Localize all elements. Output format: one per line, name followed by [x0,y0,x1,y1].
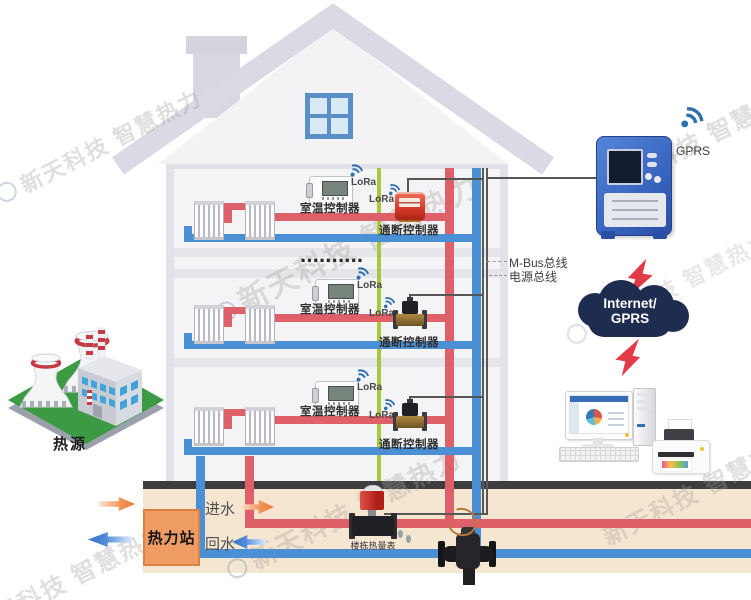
shutoff-valve-device [396,314,424,326]
chimney-cap [186,36,247,54]
mbus-line [482,168,484,515]
supply-flow-label: 进水 [205,498,235,519]
supply-flow-arrow [99,497,135,511]
concentrator-foot [601,231,615,239]
printer-color-print [662,461,688,468]
house-right-wall [500,163,508,481]
thermostat-label: 室温控制器 [298,301,362,317]
gprs-label: GPRS [676,144,710,158]
heat-source-illustration [8,328,164,450]
thermostat-screen [328,386,354,401]
heat-station-box: 热力站 [143,509,200,566]
lightning-icon [613,335,644,379]
concentrator-foot [653,231,667,239]
cloud-label: Internet/GPRS [586,296,674,326]
concentrator-link-wire [488,177,597,179]
thermostat-screen [328,284,354,299]
radiator [245,201,275,240]
radiator [194,201,224,240]
house-left-wall [166,163,174,481]
power-bus-line [486,168,488,515]
heat-source-label: 热源 [42,433,98,454]
monitor-screen [569,395,629,434]
printer-slot [658,452,694,457]
concentrator-button [645,173,652,180]
thermostat-screen [322,181,348,196]
brand-logo-icon [224,555,251,582]
shutoff-valve-device [396,416,424,428]
valve-actuator [402,403,418,416]
lora-label: LoRa [369,410,394,421]
building-heat-meter [352,516,394,536]
attic-window [305,93,353,139]
temp-sensor [406,535,411,543]
balancing-valve-stem [463,568,475,585]
radiator [245,305,275,344]
power-leader-line [489,275,507,276]
concentrator-button [647,153,657,158]
dashboard-pie-chart [586,409,602,425]
valve-label: 通断控制器 [378,222,440,238]
thermostat-label: 室温控制器 [298,403,362,419]
thermostat-antenna [306,183,313,198]
lora-label: LoRa [357,382,382,393]
valve-bus-wire [409,294,483,296]
radiator [194,407,224,446]
building-meter-label: 楼栋热量表 [344,539,402,552]
source-supply-pipe-vertical [245,456,254,527]
valve-bus-wire [409,396,483,398]
balancing-valve-body [456,533,480,569]
valve-faceplate [399,198,420,207]
valve-label: 通断控制器 [378,334,440,350]
temp-sensor [398,530,403,538]
concentrator-nameplate [604,193,666,227]
monitor [565,391,633,440]
valve-actuator [402,301,418,314]
valve-bus-wire [407,178,409,193]
valve-bus-wire [407,178,483,180]
computer-tower [633,388,656,446]
lora-label: LoRa [351,177,376,188]
mbus-leader-line [487,261,507,262]
thermostat-antenna [312,388,319,403]
plant-chimneys [86,328,105,359]
radiator [194,305,224,344]
plant-building [78,356,142,426]
heating-system-diagram: 新天科技 智慧热力 新天科技 智慧热力 新天科技 智慧热力 新天科技 智慧热力 … [0,0,751,600]
radiator [245,407,275,446]
keyboard [559,447,639,462]
concentrator-button [647,162,657,167]
lora-label: LoRa [369,194,394,205]
concentrator-screen [607,149,643,185]
thermostat-label: 室温控制器 [298,200,362,216]
supply-main-pipe [245,519,751,528]
power-bus-label: 电源总线 [509,268,557,285]
return-flow-label: 回水 [205,533,235,554]
concentrator-device [596,136,672,236]
return-riser-pipe [472,168,481,558]
lora-label: LoRa [357,280,382,291]
concentrator-button [654,176,661,183]
brand-logo-icon [0,178,20,205]
thermostat-antenna [312,286,319,301]
valve-label: 通断控制器 [378,436,440,452]
lora-label: LoRa [369,308,394,319]
heat-meter-head [360,491,384,510]
shutoff-valve-device [395,192,425,220]
